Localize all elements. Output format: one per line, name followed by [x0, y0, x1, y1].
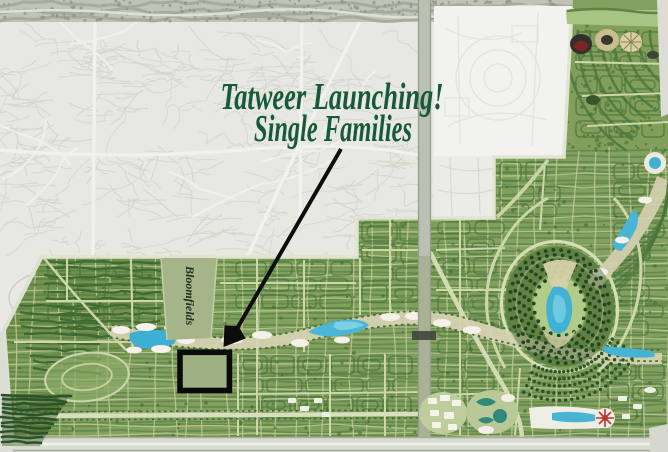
svg-text:Single Families: Single Families	[254, 108, 412, 150]
svg-text:Bloomfields: Bloomfields	[183, 265, 197, 326]
